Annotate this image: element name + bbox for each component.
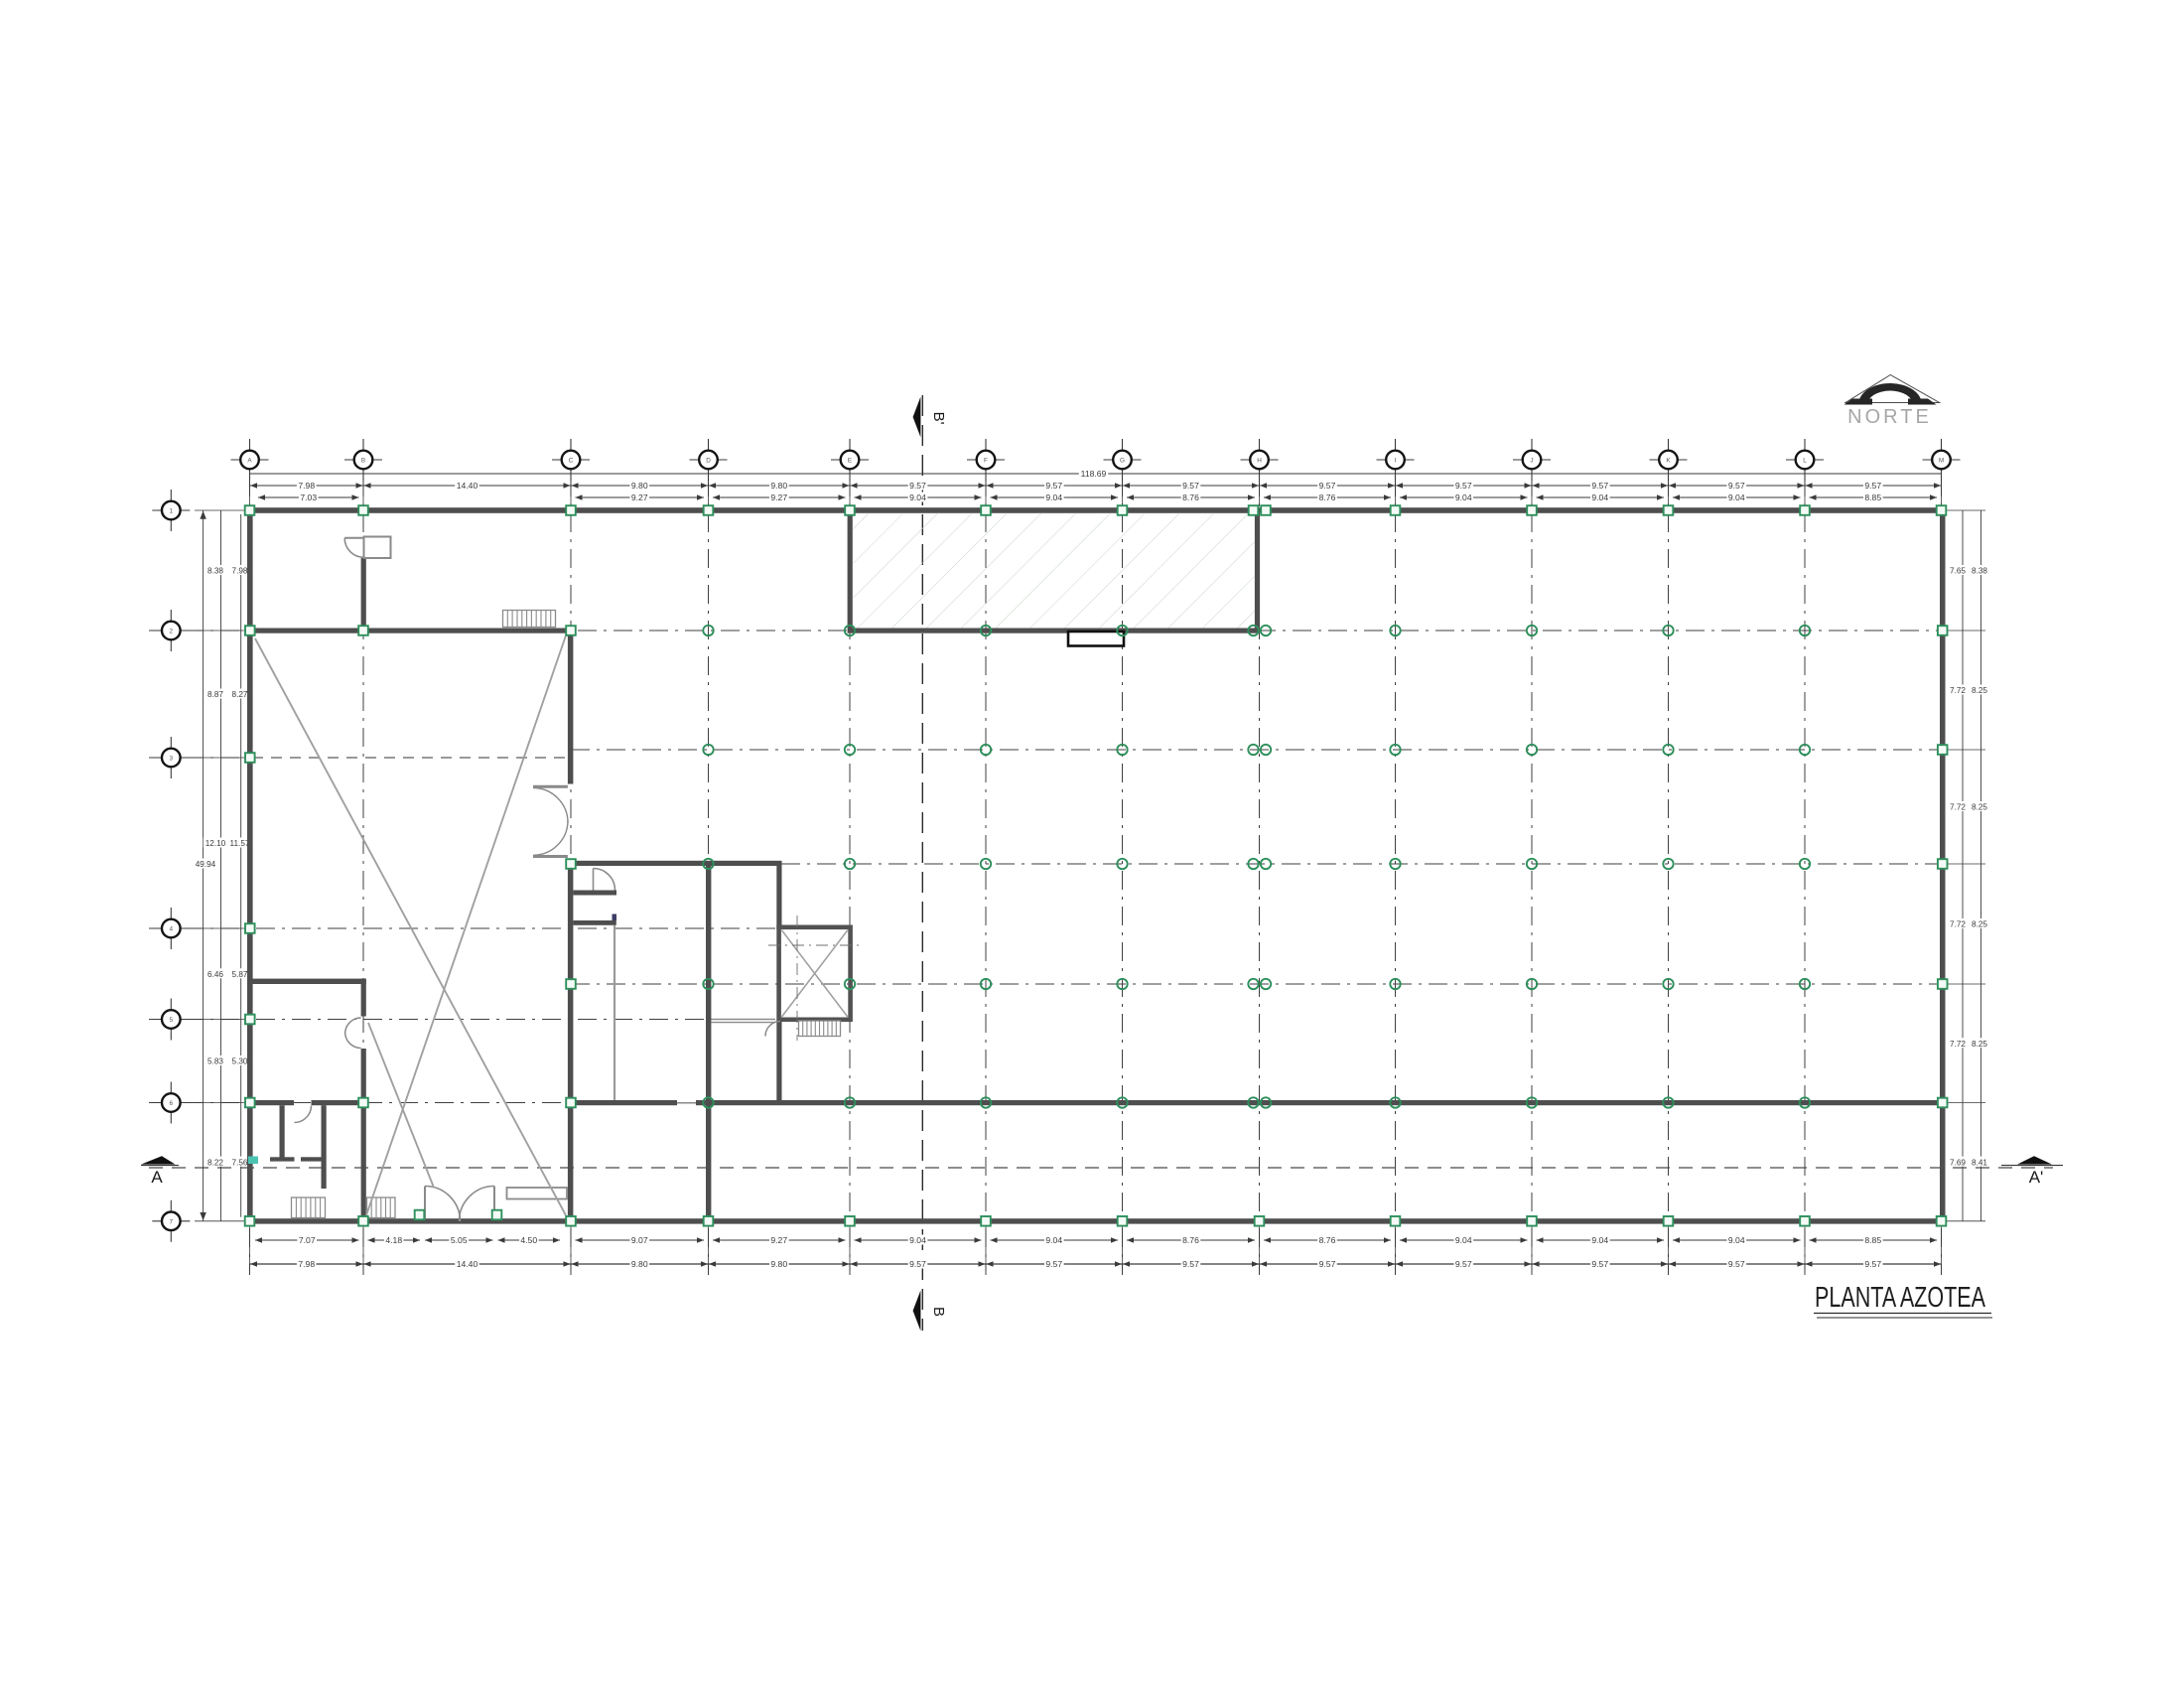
svg-text:9.57: 9.57 <box>1455 481 1472 491</box>
svg-text:NORTE: NORTE <box>1847 406 1932 428</box>
svg-text:118.69: 118.69 <box>1081 469 1107 479</box>
svg-text:8.25: 8.25 <box>1972 803 1987 812</box>
svg-text:7.07: 7.07 <box>299 1235 316 1245</box>
svg-text:8.76: 8.76 <box>1319 1235 1336 1245</box>
svg-text:2: 2 <box>170 629 174 635</box>
svg-text:5.05: 5.05 <box>451 1235 468 1245</box>
svg-text:9.04: 9.04 <box>1045 1235 1062 1245</box>
svg-text:8.38: 8.38 <box>1972 567 1987 576</box>
svg-text:PLANTA AZOTEA: PLANTA AZOTEA <box>1815 1282 1985 1314</box>
svg-text:9.80: 9.80 <box>631 1259 648 1269</box>
svg-text:12.10: 12.10 <box>205 839 226 848</box>
svg-text:7.72: 7.72 <box>1950 686 1966 695</box>
svg-text:9.07: 9.07 <box>631 1235 648 1245</box>
svg-text:7.98: 7.98 <box>298 481 315 491</box>
svg-text:7.65: 7.65 <box>1950 567 1966 576</box>
svg-text:8.85: 8.85 <box>1864 1235 1881 1245</box>
svg-text:7.98: 7.98 <box>232 567 248 576</box>
svg-text:9.27: 9.27 <box>770 1235 787 1245</box>
svg-text:9.80: 9.80 <box>770 481 787 491</box>
svg-text:E: E <box>848 458 852 465</box>
svg-text:9.57: 9.57 <box>1319 481 1336 491</box>
svg-text:K: K <box>1666 458 1671 465</box>
svg-text:9.57: 9.57 <box>1728 1259 1745 1269</box>
svg-text:9.57: 9.57 <box>1864 481 1881 491</box>
svg-text:J: J <box>1530 458 1533 465</box>
svg-text:9.57: 9.57 <box>909 481 926 491</box>
svg-text:9.57: 9.57 <box>1319 1259 1336 1269</box>
svg-text:4.18: 4.18 <box>385 1235 402 1245</box>
svg-text:7.98: 7.98 <box>298 1259 315 1269</box>
svg-text:11.57: 11.57 <box>230 839 250 848</box>
svg-text:8.27: 8.27 <box>232 690 248 699</box>
svg-text:8.76: 8.76 <box>1319 492 1336 502</box>
svg-text:49.94: 49.94 <box>196 860 216 869</box>
svg-text:H: H <box>1257 458 1262 465</box>
svg-text:8.25: 8.25 <box>1972 686 1987 695</box>
svg-text:8.22: 8.22 <box>207 1158 223 1167</box>
svg-text:9.04: 9.04 <box>909 1235 926 1245</box>
svg-text:14.40: 14.40 <box>457 1259 478 1269</box>
svg-text:9.04: 9.04 <box>1591 492 1608 502</box>
svg-text:9.57: 9.57 <box>1591 481 1608 491</box>
svg-text:6.46: 6.46 <box>207 970 223 979</box>
svg-text:9.04: 9.04 <box>1455 1235 1472 1245</box>
svg-text:9.27: 9.27 <box>770 492 787 502</box>
svg-text:7.72: 7.72 <box>1950 1040 1966 1049</box>
svg-text:1: 1 <box>170 508 174 515</box>
svg-text:9.04: 9.04 <box>1728 492 1745 502</box>
svg-text:9.57: 9.57 <box>1455 1259 1472 1269</box>
svg-text:9.04: 9.04 <box>1455 492 1472 502</box>
svg-text:A': A' <box>2029 1168 2044 1187</box>
svg-text:9.04: 9.04 <box>1591 1235 1608 1245</box>
svg-text:5.87: 5.87 <box>232 970 248 979</box>
svg-text:8.41: 8.41 <box>1972 1158 1987 1167</box>
svg-text:3: 3 <box>170 756 174 763</box>
svg-text:9.04: 9.04 <box>909 492 926 502</box>
svg-text:9.57: 9.57 <box>1182 481 1199 491</box>
svg-text:7.72: 7.72 <box>1950 920 1966 929</box>
svg-text:A: A <box>247 458 252 465</box>
svg-text:9.57: 9.57 <box>1591 1259 1608 1269</box>
svg-text:F: F <box>984 458 988 465</box>
svg-text:8.87: 8.87 <box>207 690 223 699</box>
svg-text:8.85: 8.85 <box>1864 492 1881 502</box>
svg-text:8.25: 8.25 <box>1972 920 1987 929</box>
svg-text:9.80: 9.80 <box>631 481 648 491</box>
svg-text:9.27: 9.27 <box>631 492 648 502</box>
svg-text:9.80: 9.80 <box>770 1259 787 1269</box>
svg-text:9.04: 9.04 <box>1728 1235 1745 1245</box>
svg-text:C: C <box>569 458 574 465</box>
svg-text:9.57: 9.57 <box>1045 481 1062 491</box>
svg-text:9.57: 9.57 <box>1182 1259 1199 1269</box>
svg-text:8.76: 8.76 <box>1182 1235 1199 1245</box>
svg-text:9.57: 9.57 <box>1864 1259 1881 1269</box>
svg-text:9.57: 9.57 <box>1045 1259 1062 1269</box>
svg-text:5.30: 5.30 <box>232 1057 248 1066</box>
svg-text:9.04: 9.04 <box>1045 492 1062 502</box>
svg-text:14.40: 14.40 <box>457 481 478 491</box>
svg-text:6: 6 <box>170 1100 174 1107</box>
svg-text:4.50: 4.50 <box>520 1235 537 1245</box>
svg-text:5: 5 <box>170 1017 174 1024</box>
svg-text:L: L <box>1803 458 1807 465</box>
svg-text:9.57: 9.57 <box>1728 481 1745 491</box>
svg-text:M: M <box>1939 458 1944 465</box>
svg-text:G: G <box>1120 458 1125 465</box>
svg-text:5.83: 5.83 <box>207 1057 223 1066</box>
svg-text:8.25: 8.25 <box>1972 1040 1987 1049</box>
svg-text:8.38: 8.38 <box>207 567 223 576</box>
svg-text:B: B <box>361 458 365 465</box>
svg-text:8.76: 8.76 <box>1182 492 1199 502</box>
svg-text:7.56: 7.56 <box>232 1158 248 1167</box>
svg-text:I: I <box>1395 458 1397 465</box>
svg-text:A: A <box>151 1168 163 1187</box>
svg-text:9.57: 9.57 <box>909 1259 926 1269</box>
svg-text:7.69: 7.69 <box>1950 1158 1966 1167</box>
svg-text:7.72: 7.72 <box>1950 803 1966 812</box>
svg-text:D: D <box>706 458 711 465</box>
svg-text:B': B' <box>930 412 947 425</box>
svg-text:7.03: 7.03 <box>300 492 317 502</box>
svg-text:4: 4 <box>170 926 174 933</box>
svg-text:7: 7 <box>170 1218 174 1225</box>
svg-text:B: B <box>930 1307 947 1317</box>
